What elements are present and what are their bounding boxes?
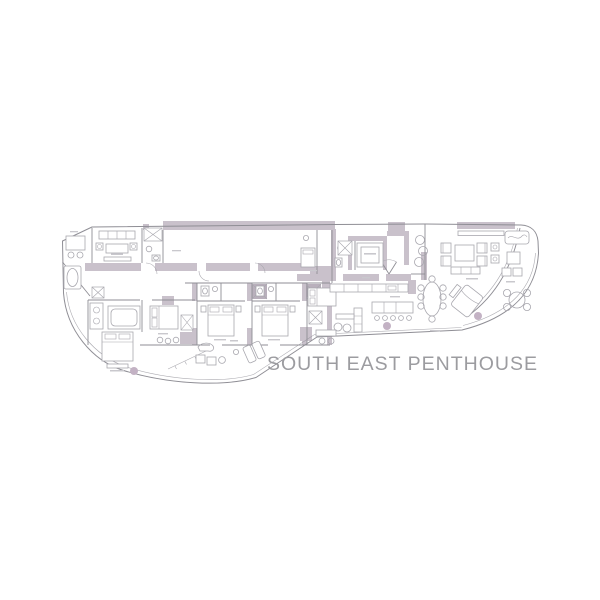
terrace-left-furniture bbox=[196, 340, 266, 365]
master-bath-furniture bbox=[90, 287, 140, 329]
closet-x-sitting bbox=[144, 228, 162, 261]
floorplan-page: SOUTH EAST PENTHOUSE bbox=[0, 0, 600, 600]
floorplan-drawing bbox=[0, 0, 600, 600]
sitting-room-furniture bbox=[96, 231, 137, 261]
kitchen-island bbox=[354, 302, 413, 332]
bathtub-left bbox=[64, 266, 81, 289]
master-bed bbox=[102, 332, 138, 375]
plan-title: SOUTH EAST PENTHOUSE bbox=[267, 353, 538, 376]
dining-table bbox=[418, 276, 446, 322]
grand-piano bbox=[445, 280, 484, 320]
powder-room bbox=[301, 235, 342, 267]
service-elevator bbox=[338, 241, 352, 255]
terrace-right-furniture bbox=[502, 231, 531, 311]
private-elevator bbox=[357, 243, 383, 267]
kitchen-counter bbox=[330, 284, 408, 292]
breakfast-nook bbox=[334, 314, 354, 332]
living-room-furniture bbox=[415, 231, 505, 274]
den-furniture bbox=[66, 236, 85, 258]
